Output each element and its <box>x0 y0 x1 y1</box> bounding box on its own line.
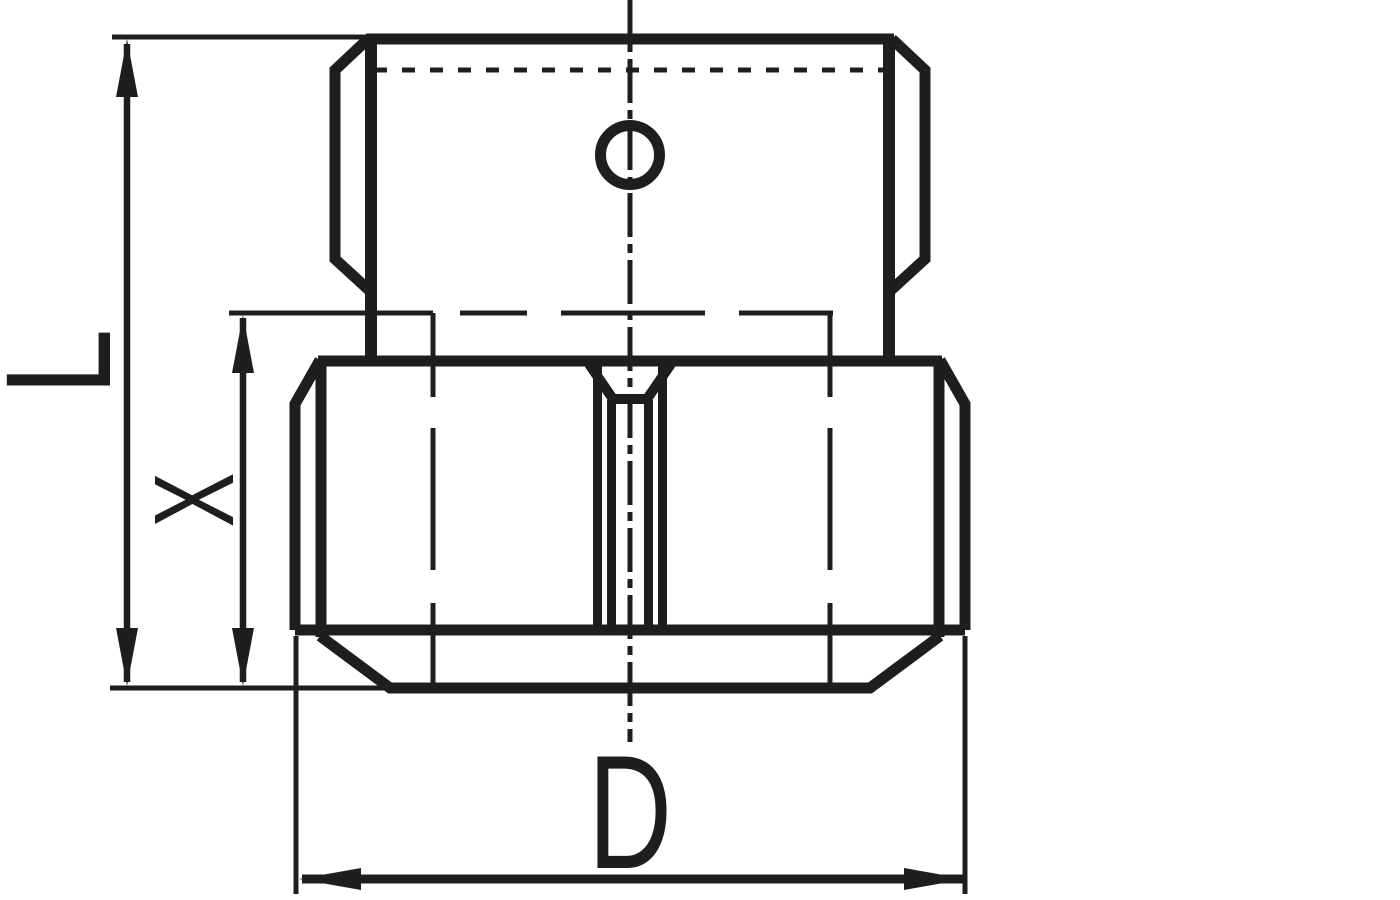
X-arrowhead-up-icon <box>232 315 254 373</box>
X-arrowhead-down-icon <box>232 628 254 686</box>
L-arrowhead-down-icon <box>116 628 138 686</box>
dimension-label-X: X <box>130 472 257 527</box>
dimension-label-L: L <box>0 329 142 396</box>
dimension-X: X <box>130 315 257 686</box>
D-arrowhead-right-icon <box>904 868 966 890</box>
dimension-label-D: D <box>588 721 672 900</box>
fitting-side-view-drawing: L X D <box>0 0 1400 900</box>
L-arrowhead-up-icon <box>116 39 138 97</box>
D-arrowhead-left-icon <box>299 868 361 890</box>
technical-drawing-page: L X D <box>0 0 1400 900</box>
